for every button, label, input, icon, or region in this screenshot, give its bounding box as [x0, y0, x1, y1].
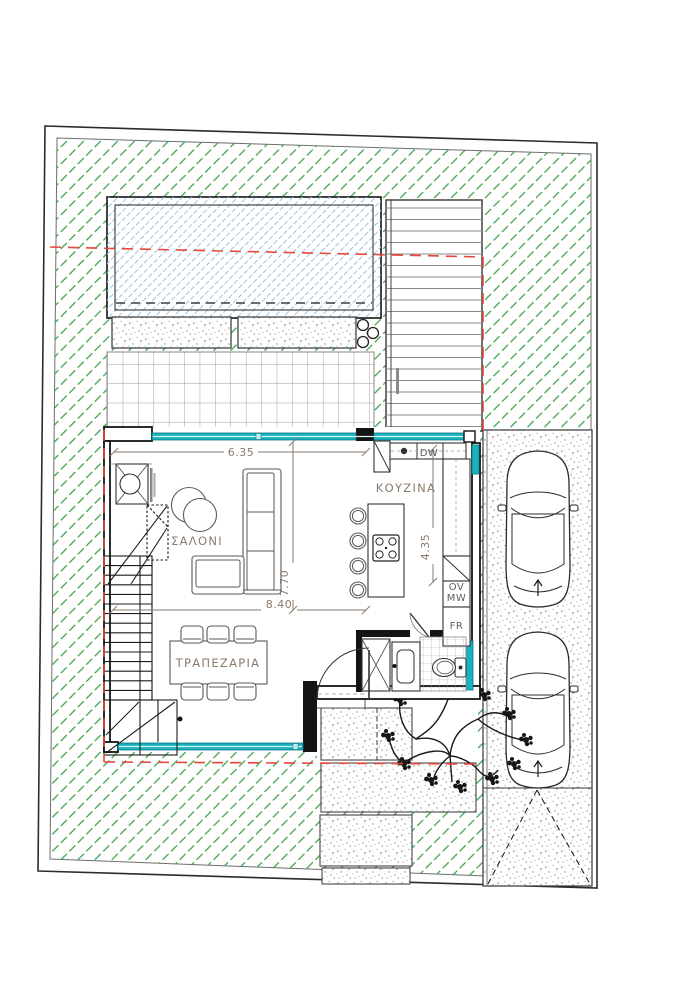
room-label-dining: ΤΡΑΠΕΖΑΡΙΑ	[175, 656, 261, 670]
glazing-wc-window	[466, 641, 473, 690]
dim-text-kitchen-depth: 4.35	[419, 534, 432, 561]
wall-pier-entrance	[303, 681, 317, 752]
driveway	[483, 430, 592, 886]
dim-text-house-width: 8.40	[266, 598, 293, 611]
wall-bottom-left	[104, 742, 118, 752]
pool	[107, 197, 381, 318]
glazing-right	[472, 445, 479, 474]
wall-pier-kitchen	[356, 428, 374, 441]
floor-plan-page: 6.35 8.40 7.70 4.35 ΣΑΛΟΝΙ ΤΡΑΠΕΖΑΡΙΑ ΚΟ…	[0, 0, 676, 984]
dim-text-living-depth: 7.70	[278, 570, 291, 597]
cooktop	[373, 535, 399, 561]
column-corner	[464, 431, 475, 442]
label-microwave: MW	[447, 593, 467, 604]
deck	[386, 200, 482, 431]
floor-plan-svg: 6.35 8.40 7.70 4.35 ΣΑΛΟΝΙ ΤΡΑΠΕΖΑΡΙΑ ΚΟ…	[0, 0, 676, 984]
tv-panel	[150, 468, 153, 502]
wall-top-left	[104, 427, 152, 441]
planter-1	[112, 317, 231, 348]
planter-2	[238, 317, 356, 348]
label-dishwasher: DW	[420, 448, 439, 459]
label-oven: OV	[449, 582, 465, 593]
room-label-kitchen: ΚΟΥΖΙΝΑ	[376, 481, 436, 495]
wall-wc-left	[356, 637, 362, 692]
deck-door-handle	[396, 368, 399, 394]
room-label-living: ΣΑΛΟΝΙ	[171, 534, 223, 548]
car-1	[498, 451, 578, 607]
wc-basin	[397, 650, 414, 683]
wc-toilet	[433, 658, 467, 677]
wall-left	[104, 441, 110, 752]
wall-wc-top-a	[356, 630, 410, 637]
door-pivot-dot	[178, 717, 183, 722]
sink-icon	[401, 448, 407, 454]
label-fridge: FR	[450, 621, 464, 632]
dim-text-living-width: 6.35	[228, 446, 255, 459]
patio-tiles	[107, 352, 374, 429]
